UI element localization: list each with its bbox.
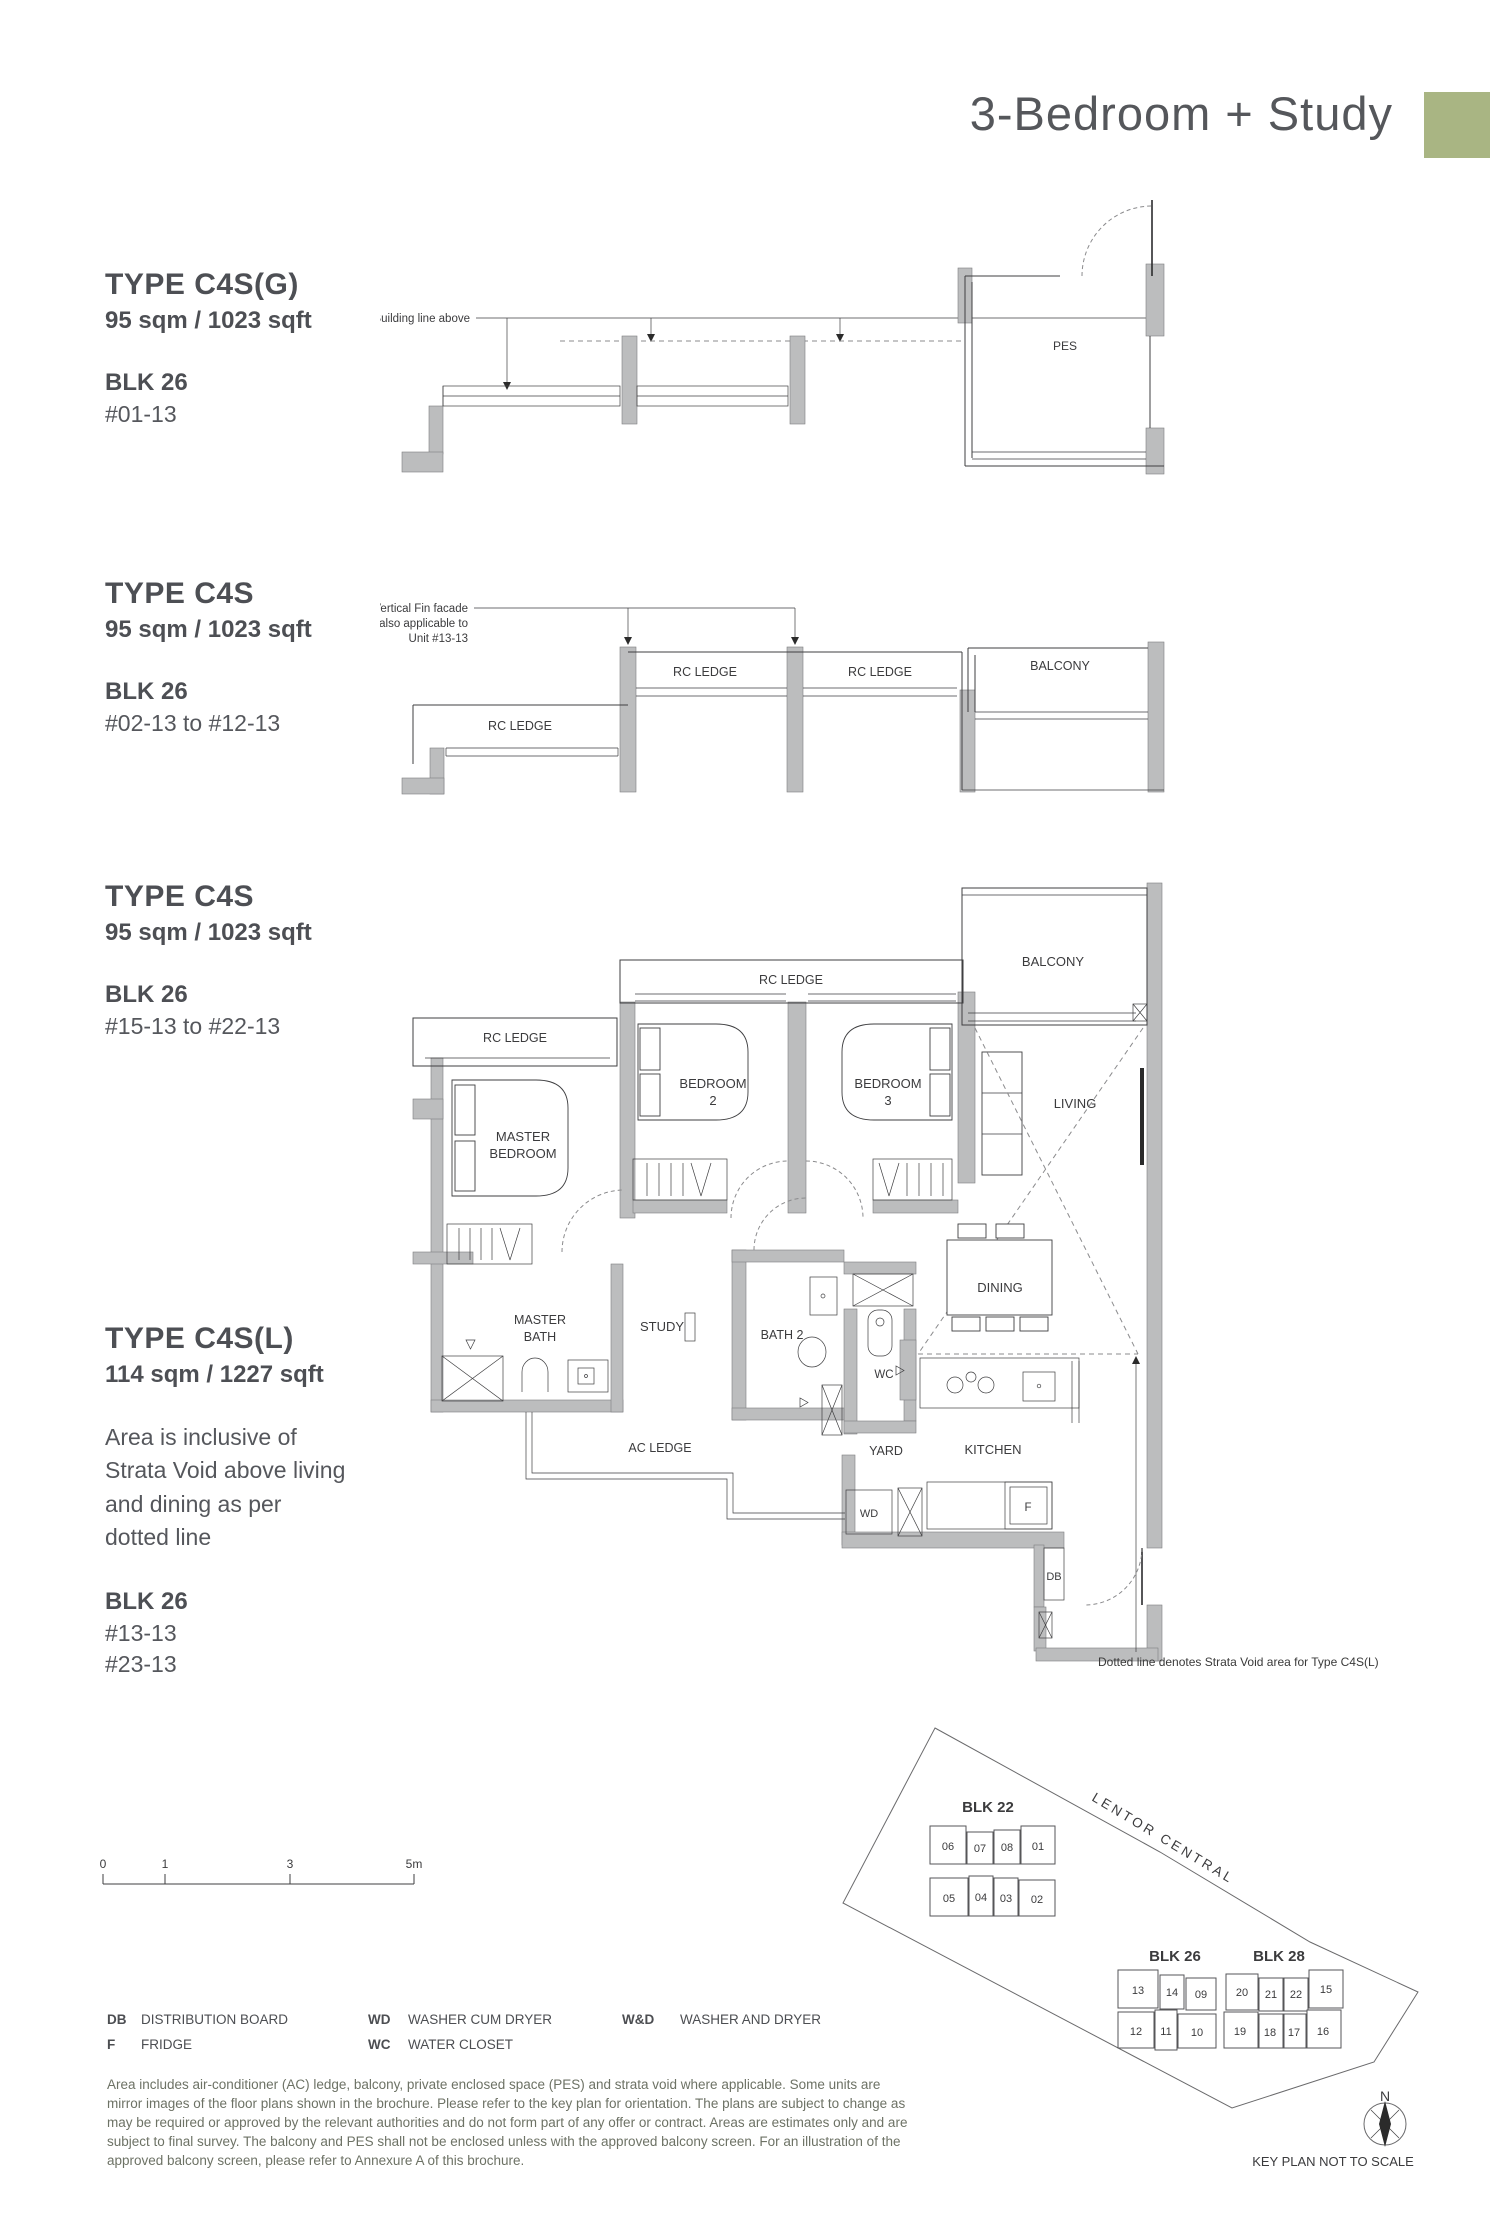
legend-label: WASHER AND DRYER bbox=[680, 2012, 821, 2027]
unit-number: 19 bbox=[1234, 2026, 1246, 2038]
section-c4sg-labels: TYPE C4S(G) 95 sqm / 1023 sqft BLK 26 #0… bbox=[105, 268, 312, 428]
unit-number: 15 bbox=[1320, 1984, 1332, 1996]
scale-tick-label: 0 bbox=[100, 1857, 107, 1871]
ac-ledge-label: AC LEDGE bbox=[628, 1441, 691, 1455]
unit-number: 05 bbox=[943, 1893, 955, 1905]
yard: YARD WD bbox=[846, 1444, 922, 1536]
study-desk bbox=[685, 1313, 695, 1341]
type-name: TYPE C4S bbox=[105, 577, 312, 611]
floor-trap-icon bbox=[466, 1340, 475, 1349]
type-name: TYPE C4S bbox=[105, 880, 312, 914]
wardrobe bbox=[873, 1159, 952, 1200]
wardrobe bbox=[633, 1159, 727, 1200]
ac-unit-box bbox=[853, 1274, 913, 1306]
block-number: BLK 26 bbox=[105, 981, 312, 1009]
blk26-units: 13 14 09 12 11 10 bbox=[1118, 1970, 1216, 2050]
legend-label: DISTRIBUTION BOARD bbox=[141, 2012, 288, 2027]
master-bath: MASTER BATH bbox=[442, 1313, 608, 1401]
type-area: 95 sqm / 1023 sqft bbox=[105, 919, 312, 947]
door-swing-arc bbox=[731, 1161, 788, 1218]
legend-item: FFRIDGE bbox=[107, 2037, 192, 2052]
unit-numbers: #01-13 bbox=[105, 401, 312, 428]
unit-number: 16 bbox=[1317, 2026, 1329, 2038]
master-bedroom-label: BEDROOM bbox=[489, 1146, 556, 1161]
page-title: 3-Bedroom + Study bbox=[500, 86, 1393, 141]
unit-numbers: #13-13 bbox=[105, 1620, 350, 1647]
legend-abbr: WD bbox=[368, 2012, 408, 2027]
section-windows bbox=[443, 386, 788, 406]
bath2-label: BATH 2 bbox=[761, 1328, 804, 1342]
dining-label: DINING bbox=[977, 1280, 1023, 1295]
sink bbox=[810, 1277, 837, 1315]
bedroom2-label: BEDROOM bbox=[679, 1076, 746, 1091]
road-label: LENTOR CENTRAL bbox=[1089, 1790, 1237, 1887]
type-area: 95 sqm / 1023 sqft bbox=[105, 307, 312, 335]
floor-trap-icon bbox=[800, 1398, 808, 1407]
strata-void-dashed-lines bbox=[918, 1028, 1143, 1652]
section-c4s-labels: TYPE C4S 95 sqm / 1023 sqft BLK 26 #02-1… bbox=[105, 577, 312, 737]
bedroom-3: BEDROOM 3 bbox=[806, 1024, 952, 1218]
sofa bbox=[982, 1052, 1022, 1175]
unit-number: 10 bbox=[1191, 2027, 1203, 2039]
db-label: DB bbox=[1046, 1571, 1061, 1583]
master-bedroom-label: MASTER bbox=[496, 1129, 550, 1144]
yard-label: YARD bbox=[869, 1444, 903, 1458]
kitchen-counter-bottom: F bbox=[927, 1482, 1052, 1529]
section-c4sl-labels: TYPE C4S(L) 114 sqm / 1227 sqft Area is … bbox=[105, 1322, 350, 1678]
unit-number: 06 bbox=[942, 1841, 954, 1853]
unit-number: 04 bbox=[975, 1892, 987, 1904]
unit-number: 22 bbox=[1290, 1989, 1302, 2001]
vertical-fin-note: also applicable to bbox=[380, 618, 468, 630]
tv-console bbox=[1140, 1068, 1144, 1165]
pes-label: PES bbox=[1053, 339, 1077, 353]
building-line-callout: Building line above bbox=[380, 313, 1150, 390]
door-swing-arc bbox=[1085, 1548, 1142, 1605]
legend-abbr: WC bbox=[368, 2037, 408, 2052]
blk22-units: 06 07 08 01 05 04 03 02 bbox=[930, 1826, 1055, 1916]
ac-ledge: AC LEDGE bbox=[526, 1412, 845, 1519]
unit-number: 12 bbox=[1130, 2026, 1142, 2038]
vanity-sink bbox=[568, 1360, 608, 1392]
rc-ledge-label: RC LEDGE bbox=[759, 973, 823, 987]
living-label: LIVING bbox=[1054, 1096, 1097, 1111]
blk26-label: BLK 26 bbox=[1149, 1948, 1201, 1965]
unit-number: 02 bbox=[1031, 1894, 1043, 1906]
kitchen-window bbox=[1072, 1361, 1079, 1423]
rc-ledge-lower: RC LEDGE bbox=[413, 705, 628, 764]
scale-tick-label: 1 bbox=[162, 1857, 169, 1871]
blk28-label: BLK 28 bbox=[1253, 1948, 1305, 1965]
type-area: 95 sqm / 1023 sqft bbox=[105, 616, 312, 644]
door-swing-arc bbox=[562, 1190, 624, 1252]
keyplan-note: KEY PLAN NOT TO SCALE bbox=[1252, 2154, 1414, 2169]
arrow-down-icon bbox=[624, 637, 632, 645]
arrow-up-icon bbox=[1132, 1356, 1140, 1364]
vertical-fin-note: Vertical Fin facade bbox=[380, 603, 468, 615]
arrow-down-icon bbox=[791, 637, 799, 645]
blk28-units: 20 21 22 15 19 18 17 16 bbox=[1224, 1970, 1343, 2048]
door-swing-arc bbox=[806, 1161, 863, 1218]
legend-item: WCWATER CLOSET bbox=[368, 2037, 513, 2052]
rc-ledge-label: RC LEDGE bbox=[488, 719, 552, 733]
wc-label: WC bbox=[874, 1369, 893, 1381]
unit-number: 08 bbox=[1001, 1842, 1013, 1854]
unit-number: 17 bbox=[1288, 2027, 1300, 2039]
unit-numbers: #02-13 to #12-13 bbox=[105, 710, 312, 737]
vertical-fin-callout: Vertical Fin facade also applicable to U… bbox=[380, 603, 799, 645]
floorplan-c4s-main: RC LEDGE RC LEDGE BALCONY MASTER BEDROOM bbox=[395, 860, 1170, 1675]
toilet bbox=[522, 1358, 548, 1392]
unit-number: 11 bbox=[1160, 2026, 1171, 2038]
brochure-page: 3-Bedroom + Study TYPE C4S(G) 95 sqm / 1… bbox=[0, 0, 1495, 2229]
legend-label: WATER CLOSET bbox=[408, 2037, 513, 2052]
legend-label: FRIDGE bbox=[141, 2037, 192, 2052]
toilet bbox=[798, 1337, 826, 1367]
master-bath-label: MASTER bbox=[514, 1313, 566, 1327]
balcony-label: BALCONY bbox=[1022, 954, 1084, 969]
building-line-label: Building line above bbox=[380, 313, 470, 325]
kitchen-label: KITCHEN bbox=[964, 1442, 1021, 1457]
rc-ledge-top: RC LEDGE bbox=[620, 960, 963, 1003]
unit-number: 18 bbox=[1264, 2027, 1276, 2039]
type-area: 114 sqm / 1227 sqft bbox=[105, 1361, 350, 1389]
study-label: STUDY bbox=[640, 1319, 684, 1334]
kitchen: KITCHEN F bbox=[920, 1358, 1079, 1529]
fridge-label: F bbox=[1024, 1502, 1031, 1514]
pes-room: PES bbox=[965, 200, 1164, 466]
legend-label: WASHER CUM DRYER bbox=[408, 2012, 552, 2027]
unit-number: 21 bbox=[1265, 1989, 1277, 2001]
block-number: BLK 26 bbox=[105, 369, 312, 397]
unit-numbers: #15-13 to #22-13 bbox=[105, 1013, 312, 1040]
legend-item: WDWASHER CUM DRYER bbox=[368, 2012, 552, 2027]
rc-ledge-left: RC LEDGE bbox=[413, 1018, 617, 1066]
disclaimer-text: Area includes air-conditioner (AC) ledge… bbox=[107, 2076, 915, 2170]
legend-item: DBDISTRIBUTION BOARD bbox=[107, 2012, 288, 2027]
scale-tick-label: 3 bbox=[287, 1857, 294, 1871]
kitchen-counter-top bbox=[920, 1358, 1079, 1408]
rc-ledge-label: RC LEDGE bbox=[848, 665, 912, 679]
legend-item: W&DWASHER AND DRYER bbox=[622, 2012, 821, 2027]
study-area: STUDY bbox=[640, 1313, 695, 1341]
unit-number: 03 bbox=[1000, 1893, 1012, 1905]
bedroom2-label: 2 bbox=[709, 1093, 716, 1108]
dining-area: DINING bbox=[947, 1224, 1052, 1331]
kitchen-sink bbox=[1023, 1372, 1055, 1401]
unit-number: 20 bbox=[1236, 1987, 1248, 1999]
section-c4s-main-labels: TYPE C4S 95 sqm / 1023 sqft BLK 26 #15-1… bbox=[105, 880, 312, 1040]
unit-number: 01 bbox=[1032, 1841, 1044, 1853]
bedroom3-label: 3 bbox=[884, 1093, 891, 1108]
blk22-label: BLK 22 bbox=[962, 1799, 1014, 1816]
bath-2: BATH 2 bbox=[754, 1198, 842, 1435]
unit-number: 13 bbox=[1132, 1985, 1144, 1997]
toilet bbox=[868, 1310, 892, 1356]
balcony-section: BALCONY bbox=[962, 648, 1164, 790]
wd-label: WD bbox=[860, 1508, 878, 1520]
block-number: BLK 26 bbox=[105, 1588, 350, 1616]
key-plan: LENTOR CENTRAL BLK 22 06 07 08 01 05 04 … bbox=[830, 1700, 1450, 2200]
legend-abbr: F bbox=[107, 2037, 141, 2052]
legend-abbr: DB bbox=[107, 2012, 141, 2027]
rc-ledge-label: RC LEDGE bbox=[673, 665, 737, 679]
rc-ledge-label: RC LEDGE bbox=[483, 1031, 547, 1045]
unit-number: 07 bbox=[974, 1843, 986, 1855]
section-walls bbox=[402, 264, 1164, 474]
scale-bar: 0 1 3 5m bbox=[85, 1845, 445, 1900]
scale-tick-label: 5m bbox=[406, 1857, 423, 1871]
floorplan-c4s-section: Vertical Fin facade also applicable to U… bbox=[380, 545, 1175, 807]
north-arrow-icon: N bbox=[1364, 2088, 1406, 2147]
master-bedroom: MASTER BEDROOM bbox=[447, 1080, 624, 1264]
balcony: BALCONY bbox=[962, 888, 1147, 1025]
shower bbox=[442, 1340, 503, 1401]
balcony-label: BALCONY bbox=[1030, 659, 1090, 673]
unit-number: 09 bbox=[1195, 1989, 1207, 2001]
legend-abbr: W&D bbox=[622, 2012, 680, 2027]
accent-square-fill bbox=[1424, 92, 1490, 158]
strata-void-note: Area is inclusive of Strata Void above l… bbox=[105, 1421, 350, 1554]
door-swing-arc bbox=[1082, 206, 1152, 276]
dining-table bbox=[947, 1240, 1052, 1315]
site-boundary bbox=[843, 1728, 1418, 2108]
unit-number: 14 bbox=[1166, 1987, 1178, 1999]
strata-void-footnote: Dotted line denotes Strata Void area for… bbox=[1098, 1655, 1379, 1669]
yard-window bbox=[898, 1488, 922, 1536]
type-name: TYPE C4S(G) bbox=[105, 268, 312, 302]
bedroom-2: BEDROOM 2 bbox=[633, 1024, 788, 1218]
unit-numbers: #23-13 bbox=[105, 1651, 350, 1678]
floorplan-c4sg-section: Building line above bbox=[380, 195, 1175, 500]
living-area: LIVING bbox=[918, 1028, 1144, 1652]
bedroom3-label: BEDROOM bbox=[854, 1076, 921, 1091]
vertical-fin-note: Unit #13-13 bbox=[409, 633, 468, 645]
accent-square bbox=[1424, 92, 1490, 158]
block-number: BLK 26 bbox=[105, 678, 312, 706]
type-name: TYPE C4S(L) bbox=[105, 1322, 350, 1356]
entry-area: DB bbox=[1039, 1548, 1142, 1638]
master-bath-label: BATH bbox=[524, 1330, 556, 1344]
